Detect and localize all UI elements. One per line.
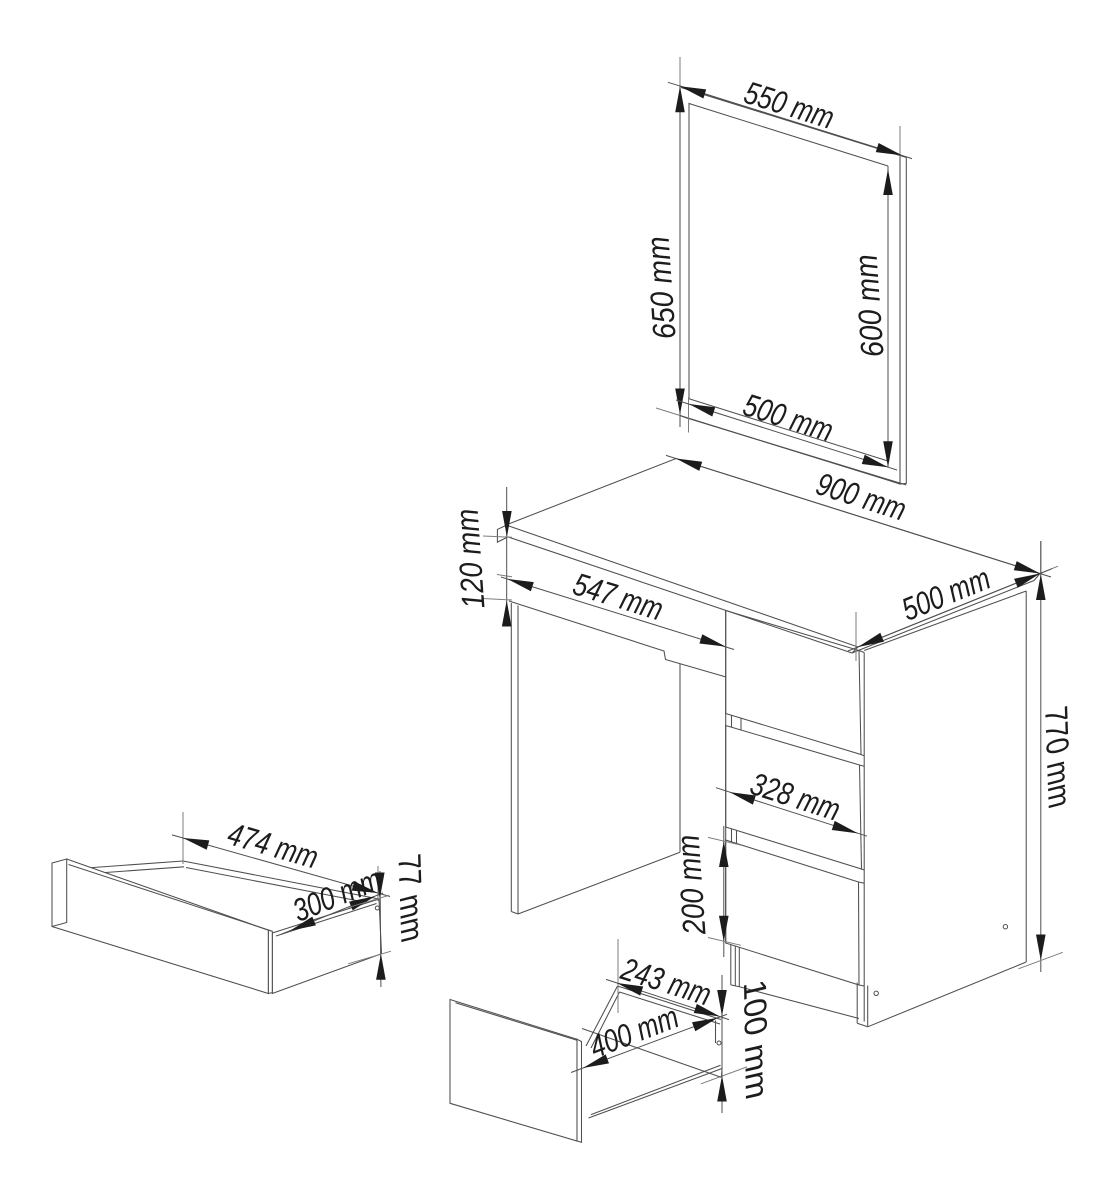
svg-text:100 mm: 100 mm: [737, 976, 775, 1102]
svg-text:650 mm: 650 mm: [639, 235, 682, 340]
svg-text:600 mm: 600 mm: [847, 253, 890, 358]
svg-text:120 mm: 120 mm: [449, 508, 492, 610]
svg-text:77 mm: 77 mm: [392, 851, 430, 946]
svg-text:200 mm: 200 mm: [670, 834, 713, 937]
svg-text:770 mm: 770 mm: [1038, 703, 1077, 812]
